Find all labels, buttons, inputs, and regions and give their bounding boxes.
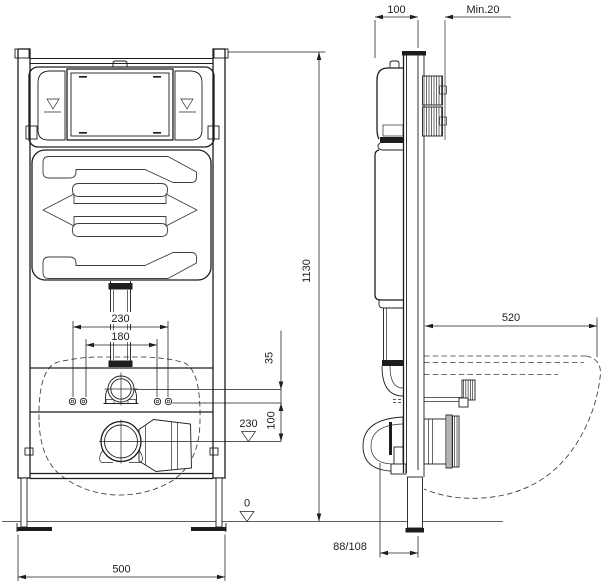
rail-top-cap-left (15, 49, 29, 58)
wc-frame-installation-diagram: 230 180 35 100 230 0 (0, 0, 607, 582)
dim-side-bowl-depth: 520 (502, 312, 520, 324)
drain-spigot (424, 415, 459, 468)
double-arrow-rib (43, 194, 197, 226)
dim-flush-outlet-offset: 35 (264, 352, 276, 364)
level-floor: 0 (244, 498, 250, 510)
wing-right (175, 71, 202, 140)
cistern (29, 61, 214, 280)
fill-valve-cap-side (390, 61, 399, 68)
dim-side-frame-depth: 100 (387, 4, 405, 16)
cistern-side-profile (375, 61, 403, 403)
drain-outlet (100, 420, 192, 472)
dim-total-width: 500 (18, 535, 225, 582)
rail-top-cap-right (214, 49, 228, 58)
dim-flush-to-drain: 100 (266, 411, 278, 429)
level-mark-drain: 230 (239, 418, 257, 442)
side-leg (406, 477, 425, 533)
dim-front-total-width: 500 (112, 564, 130, 576)
level-drain-height: 230 (239, 418, 257, 430)
foot-plate-side (406, 528, 425, 533)
frame-feet (17, 478, 226, 532)
dim-front-bolt-spacing-outer: 230 (111, 313, 129, 325)
foot-plate-right (191, 527, 226, 531)
dimensions: 230 180 35 100 230 0 (18, 4, 597, 581)
rail-clip-left (26, 126, 37, 139)
drain-trap (363, 417, 406, 474)
flush-outlet (104, 373, 139, 406)
dim-bowl-depth: 520 (425, 312, 597, 357)
rail-top-cap-side (402, 51, 426, 56)
dim-side-drain-offset: 88/108 (333, 541, 367, 553)
pipe-coupling-side (382, 360, 403, 366)
cistern-ribs (43, 157, 197, 279)
water-level-icon (179, 99, 196, 112)
pipe-coupling-upper (109, 283, 133, 290)
level-mark-floor: 0 (240, 498, 254, 522)
drain-elbow (139, 420, 192, 472)
dim-front-total-height: 1130 (301, 259, 313, 283)
dim-total-height: 1130 (228, 52, 326, 522)
fixing-stud (424, 380, 475, 407)
dim-front-bolt-spacing-inner: 180 (111, 331, 129, 343)
front-view (15, 49, 228, 532)
diagram-svg: 230 180 35 100 230 0 (0, 0, 607, 582)
wing-left (38, 71, 65, 140)
dim-frame-depth: 100 (375, 4, 418, 58)
lower-crossbar (30, 474, 213, 479)
access-panel (67, 69, 173, 140)
dim-drain-offset: 88/108 (333, 463, 418, 558)
level-triangle-icon (242, 432, 256, 442)
level-triangle-icon (240, 512, 254, 522)
dim-side-wall-clearance: Min.20 (466, 4, 499, 16)
pipe-coupling-lower (109, 361, 133, 368)
water-level-icon (44, 99, 61, 112)
dim-wall-clearance: Min.20 (445, 4, 511, 19)
wall-anchor-plates (423, 76, 447, 136)
fill-valve-cap (113, 61, 127, 67)
foot-plate-left (17, 527, 52, 531)
side-view (363, 20, 600, 533)
